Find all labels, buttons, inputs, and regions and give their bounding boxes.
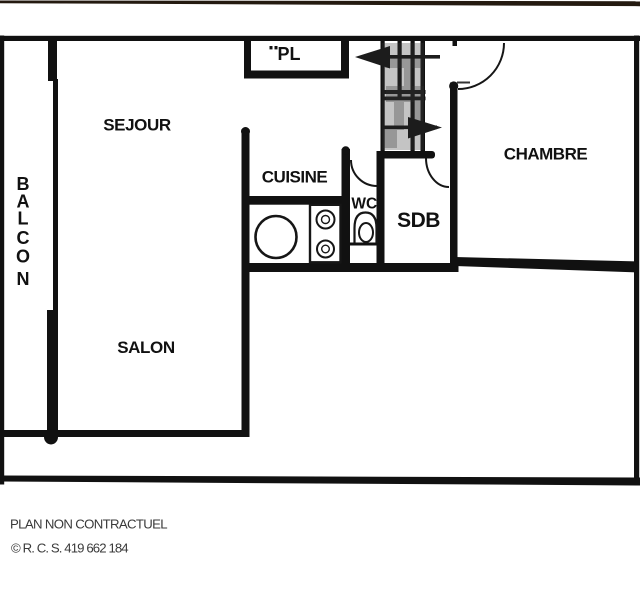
svg-text:CHAMBRE: CHAMBRE bbox=[504, 144, 588, 163]
svg-text:WC: WC bbox=[351, 196, 377, 213]
svg-text:N: N bbox=[17, 269, 30, 289]
svg-text:PLAN NON CONTRACTUEL: PLAN NON CONTRACTUEL bbox=[10, 517, 167, 532]
svg-text:C: C bbox=[17, 228, 30, 248]
svg-text:SEJOUR: SEJOUR bbox=[103, 116, 171, 135]
svg-text:SDB: SDB bbox=[397, 209, 440, 232]
svg-text:SALON: SALON bbox=[117, 338, 175, 357]
svg-text:CUISINE: CUISINE bbox=[262, 168, 328, 187]
svg-text:PL: PL bbox=[277, 44, 300, 64]
svg-text:© R. C. S. 419 662 184: © R. C. S. 419 662 184 bbox=[11, 540, 128, 555]
svg-text:O: O bbox=[16, 247, 30, 267]
svg-text:L: L bbox=[18, 208, 29, 228]
